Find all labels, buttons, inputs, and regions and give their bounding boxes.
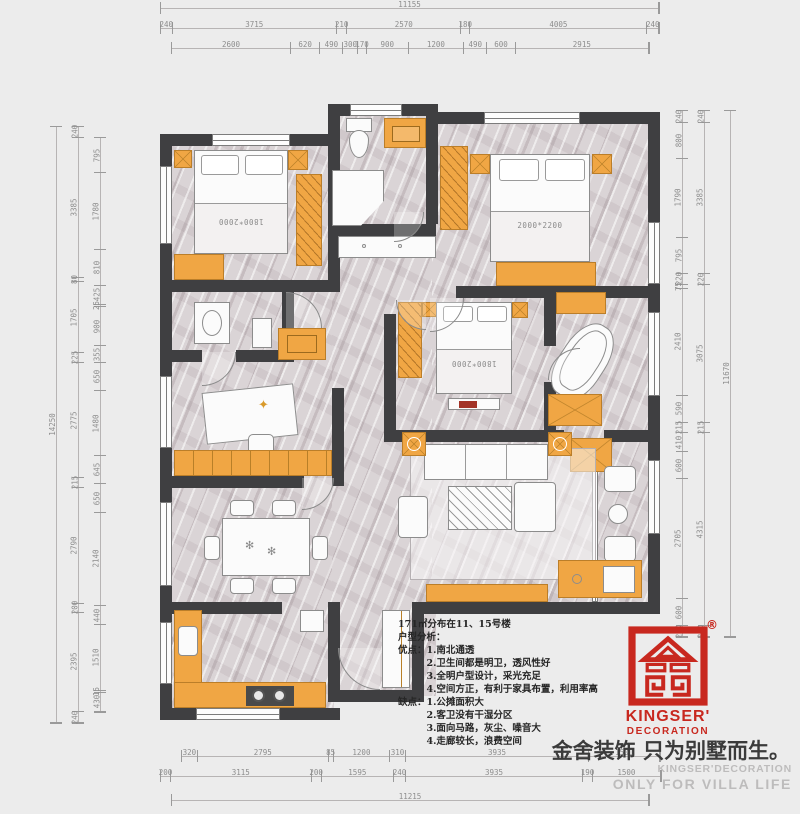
- dimension-segment: 220: [698, 274, 710, 285]
- dimension-value: 620: [298, 40, 312, 49]
- dining-chair: [272, 500, 296, 516]
- dimension-segment: 3715: [173, 22, 337, 34]
- dimension-segment: 240: [72, 127, 84, 138]
- dimension-segment: 240: [394, 770, 406, 782]
- dimension-value: 200: [159, 768, 173, 777]
- dimension-value: 650: [92, 491, 101, 505]
- dimension-value: 2795: [254, 748, 272, 757]
- dimension-segment: 1790: [676, 159, 688, 239]
- dimension-value: 440: [92, 608, 101, 622]
- dimension-segment: 200: [161, 770, 171, 782]
- dimension-value: 225: [70, 351, 79, 365]
- pillow: [545, 159, 585, 181]
- dimension-value: 3385: [696, 189, 705, 207]
- dimension-value: 355: [92, 347, 101, 361]
- list-item: 3.全明户型设计，采光充足: [427, 670, 598, 683]
- laundry-cabinet: [278, 328, 326, 360]
- dimension-segment: 600: [487, 42, 515, 54]
- dimension-value: 900: [92, 319, 101, 333]
- dimension-segment: 2795: [198, 750, 329, 762]
- dimension-segment: 225: [72, 353, 84, 363]
- dimension-value: 1595: [348, 768, 366, 777]
- pillow: [477, 306, 507, 322]
- bookshelf: [174, 450, 332, 476]
- dim-chain-left-mid: 2403385801705225277521527902002395240: [72, 126, 84, 724]
- dimension-value: 1790: [674, 189, 683, 207]
- bench-cushion: [459, 401, 477, 408]
- pillow: [245, 155, 283, 175]
- dimension-value: 600: [674, 605, 683, 619]
- dimension-value: 430: [92, 695, 101, 709]
- bed-sheet: [437, 349, 511, 393]
- dimension-value: 11155: [398, 0, 421, 9]
- analysis-title: 户型分析：: [398, 631, 638, 644]
- dim-chain-left-inner: 7951780810425259003556501480645650214044…: [94, 137, 106, 713]
- storage-cabinet: [548, 394, 602, 426]
- wall: [160, 350, 202, 362]
- dimension-segment: 3385: [72, 138, 84, 278]
- wall: [384, 314, 396, 432]
- burner: [273, 689, 286, 702]
- dimension-value: 1705: [70, 308, 79, 326]
- sofa: [424, 444, 548, 480]
- dimension-segment: 170: [358, 42, 367, 54]
- dimension-segment: 430: [94, 693, 106, 712]
- logo-word-decoration: DECORATION: [616, 726, 720, 737]
- stove: [246, 686, 294, 706]
- bed-size-label: 1800*2000: [195, 217, 287, 226]
- dimension-segment: 410: [676, 433, 688, 452]
- wall: [412, 602, 660, 614]
- dimension-segment: 4315: [698, 433, 710, 626]
- dimension-segment: 240: [161, 22, 173, 34]
- dimension-value: 650: [92, 370, 101, 384]
- window: [648, 312, 660, 396]
- vanity-sink: [392, 126, 420, 142]
- dimension-segment: 210: [337, 22, 347, 34]
- brand-tagline: 金舍装饰 只为别墅而生。: [430, 738, 790, 764]
- dining-chair: [230, 578, 254, 594]
- window: [160, 166, 172, 244]
- dimension-segment: 2790: [72, 488, 84, 604]
- dimension-segment: 645: [94, 456, 106, 485]
- dimension-segment: 200: [72, 604, 84, 613]
- dim-chain-top-inner: 260062049030017090012004906002915: [171, 42, 650, 54]
- list-item: 2.客卫没有干湿分区: [427, 709, 541, 722]
- dimension-value: 215: [70, 476, 79, 490]
- dimension-value: 795: [674, 249, 683, 263]
- balcony-chair: [604, 466, 636, 492]
- pros-row: 优点： 1.南北通透2.卫生间都是明卫，透风性好3.全明户型设计，采光充足4.空…: [398, 644, 638, 696]
- dimension-value: 590: [674, 402, 683, 416]
- dimension-value: 900: [380, 40, 394, 49]
- bed-size-label: 2000*2200: [491, 221, 589, 230]
- side-table: [402, 432, 426, 456]
- dimension-value: 3385: [70, 198, 79, 216]
- dimension-segment: 215: [72, 478, 84, 488]
- dimension-value: 240: [70, 710, 79, 724]
- dimension-value: 240: [696, 110, 705, 124]
- burner: [252, 689, 265, 702]
- watermark-line1: KINGSER'DECORATION: [530, 763, 792, 775]
- dimension-segment: 650: [94, 363, 106, 392]
- dimension-value: 600: [674, 458, 683, 472]
- dimension-value: 210: [335, 20, 349, 29]
- dimension-value: 85: [326, 748, 335, 757]
- dim-chain-right-overall: 11670: [724, 110, 736, 638]
- desk: [496, 262, 596, 286]
- dimension-segment: 900: [94, 307, 106, 346]
- dimension-segment: 215: [676, 423, 688, 433]
- nightstand: [512, 302, 528, 318]
- wall: [544, 286, 556, 346]
- dimension-segment: 3115: [171, 770, 312, 782]
- dimension-segment: 2410: [676, 289, 688, 396]
- dimension-segment: 2140: [94, 513, 106, 606]
- compass-decor-icon: ✦: [258, 398, 269, 413]
- bed-top-left: 1800*2000: [194, 150, 288, 254]
- coffee-table: [448, 486, 512, 530]
- list-item: 1.南北通透: [427, 644, 598, 657]
- window: [160, 622, 172, 684]
- kingser-logo-icon: [628, 626, 708, 706]
- dimension-value: 2915: [573, 40, 591, 49]
- nightstand: [174, 150, 192, 168]
- dimension-segment: 310: [390, 750, 405, 762]
- dimension-value: 180: [459, 20, 473, 29]
- dimension-segment: 2705: [676, 479, 688, 599]
- dimension-segment: 1780: [94, 173, 106, 250]
- analysis-text-block: 171㎡分布在11、15号楼 户型分析： 优点： 1.南北通透2.卫生间都是明卫…: [398, 618, 638, 748]
- laundry-sink: [252, 318, 272, 348]
- dimension-segment: 11155: [161, 2, 659, 14]
- logo-word-kingser: KINGSER': [616, 708, 720, 726]
- dimension-value: 3935: [485, 768, 503, 777]
- kingser-logo: ® KINGSER' DECORATION: [616, 620, 720, 737]
- dimension-value: 220: [696, 272, 705, 286]
- bed-bench: [448, 398, 500, 410]
- dimension-value: 2395: [70, 653, 79, 671]
- dimension-segment: 240: [698, 111, 710, 123]
- dim-chain-bottom-overall: 11215: [171, 794, 650, 806]
- nightstand: [592, 154, 612, 174]
- armchair: [398, 496, 428, 538]
- dimension-segment: 14250: [50, 127, 62, 723]
- dimension-value: 215: [696, 421, 705, 435]
- dimension-segment: 2570: [347, 22, 461, 34]
- nightstand: [288, 150, 308, 170]
- dimension-segment: 2395: [72, 613, 84, 712]
- dimension-value: 200: [309, 768, 323, 777]
- dimension-segment: 1510: [94, 625, 106, 691]
- dimension-segment: 355: [94, 346, 106, 362]
- dimension-segment: 2915: [516, 42, 649, 54]
- dimension-value: 4005: [549, 20, 567, 29]
- area-line: 171㎡分布在11、15号楼: [398, 618, 638, 631]
- dimension-segment: 1480: [94, 391, 106, 455]
- dining-table: ✻ ✻: [222, 518, 310, 576]
- dimension-value: 240: [70, 125, 79, 139]
- dimension-segment: 1595: [322, 770, 395, 782]
- dimension-value: 320: [183, 748, 197, 757]
- dimension-value: 3075: [696, 344, 705, 362]
- dimension-value: 3115: [232, 768, 250, 777]
- window: [212, 134, 290, 146]
- dimension-value: 2790: [70, 536, 79, 554]
- dim-chain-left-overall: 14250: [50, 126, 62, 724]
- list-item: 3.面向马路，灰尘、噪音大: [427, 722, 541, 735]
- dimension-value: 240: [674, 109, 683, 123]
- dimension-segment: 490: [464, 42, 487, 54]
- dimension-value: 800: [674, 133, 683, 147]
- wall: [160, 476, 304, 488]
- dim-chain-top-overall: 11155: [160, 2, 660, 14]
- dimension-value: 1780: [92, 202, 101, 220]
- dimension-value: 1480: [92, 414, 101, 432]
- watermark-line2: ONLY FOR VILLA LIFE: [530, 776, 792, 792]
- dimension-value: 310: [391, 748, 405, 757]
- pillow: [499, 159, 539, 181]
- dimension-value: 1200: [427, 40, 445, 49]
- window: [196, 708, 280, 720]
- dining-chair: [312, 536, 328, 560]
- dimension-segment: 2775: [72, 363, 84, 478]
- dimension-value: 240: [393, 768, 407, 777]
- side-table: [548, 432, 572, 456]
- dimension-value: 11670: [722, 362, 731, 385]
- dimension-value: 4315: [696, 520, 705, 538]
- pros-label: 优点：: [398, 644, 427, 696]
- dimension-value: 1510: [92, 649, 101, 667]
- dimension-segment: 440: [94, 606, 106, 626]
- dimension-value: 75: [674, 282, 683, 291]
- wardrobe: [440, 146, 468, 230]
- wall: [426, 116, 438, 224]
- dimension-value: 25: [92, 301, 101, 310]
- window: [484, 112, 580, 124]
- dimension-segment: 320: [182, 750, 198, 762]
- nightstand: [470, 154, 490, 174]
- bath-vanity: [556, 292, 606, 314]
- dimension-segment: 800: [676, 123, 688, 159]
- balcony-table: [608, 504, 628, 524]
- dim-chain-right-inner: 2408001790795220752410590215410600270560…: [676, 110, 688, 638]
- dimension-value: 2570: [395, 20, 413, 29]
- dimension-value: 2705: [674, 530, 683, 548]
- dimension-value: 1200: [352, 748, 370, 757]
- dimension-value: 810: [92, 261, 101, 275]
- dimension-segment: 11215: [172, 794, 649, 806]
- dimension-value: 795: [92, 148, 101, 162]
- list-item: 4.空间方正，有利于家具布置，利用率高: [427, 683, 598, 696]
- dimension-segment: 240: [647, 22, 659, 34]
- registered-mark: ®: [706, 618, 718, 632]
- dimension-segment: 4005: [470, 22, 647, 34]
- dimension-value: 2410: [674, 333, 683, 351]
- washing-machine: [194, 302, 230, 344]
- dimension-value: 240: [646, 20, 660, 29]
- fridge: [300, 610, 324, 632]
- kitchen-sink: [178, 626, 198, 656]
- dimension-value: 200: [70, 601, 79, 615]
- dimension-segment: 215: [698, 423, 710, 434]
- dimension-value: 215: [674, 421, 683, 435]
- dimension-segment: 240: [676, 111, 688, 123]
- cons-label: 缺点：: [398, 696, 427, 748]
- dining-chair: [230, 500, 254, 516]
- dimension-segment: 620: [291, 42, 320, 54]
- dimension-segment: 200: [312, 770, 322, 782]
- brand-watermark: KINGSER'DECORATION ONLY FOR VILLA LIFE: [530, 763, 792, 792]
- dim-chain-top-mid: 240371521025701804005240: [160, 22, 660, 34]
- dimension-value: 14250: [48, 413, 57, 436]
- dimension-value: 600: [494, 40, 508, 49]
- dimension-segment: 240: [72, 712, 84, 723]
- wall: [160, 280, 340, 292]
- dimension-segment: 2600: [172, 42, 291, 54]
- dimension-value: 490: [325, 40, 339, 49]
- wall: [604, 430, 660, 442]
- dimension-value: 80: [70, 275, 79, 284]
- dimension-value: 425: [92, 288, 101, 302]
- dimension-segment: 1200: [334, 750, 391, 762]
- dimension-segment: 600: [676, 452, 688, 479]
- dimension-segment: 180: [461, 22, 470, 34]
- dimension-segment: 3075: [698, 285, 710, 423]
- dimension-segment: 490: [320, 42, 343, 54]
- wardrobe: [296, 174, 322, 266]
- balcony-counter: [558, 560, 642, 598]
- window: [648, 222, 660, 284]
- dimension-segment: 795: [94, 138, 106, 173]
- round-sink: [565, 567, 589, 591]
- dimension-segment: 1200: [409, 42, 464, 54]
- dimension-segment: 900: [367, 42, 409, 54]
- tv-cabinet: [426, 584, 548, 602]
- dimension-value: 11215: [399, 792, 422, 801]
- window: [160, 376, 172, 448]
- chaise-chair: [514, 482, 556, 532]
- dimension-value: 3715: [245, 20, 263, 29]
- window: [350, 104, 402, 116]
- bed-top-right: 2000*2200: [490, 154, 590, 262]
- dining-chair: [204, 536, 220, 560]
- dimension-value: 2140: [92, 550, 101, 568]
- bath-vanity: [384, 118, 426, 148]
- dimension-segment: 11670: [724, 111, 736, 637]
- dim-chain-right-mid: 240338522030752154315220: [698, 110, 710, 638]
- dimension-value: 645: [92, 463, 101, 477]
- dimension-value: 410: [674, 435, 683, 449]
- sink-basin: [355, 237, 373, 255]
- dimension-segment: 1705: [72, 282, 84, 353]
- dimension-value: 2775: [70, 411, 79, 429]
- utility-sink: [603, 566, 635, 593]
- window: [160, 502, 172, 586]
- wall: [332, 388, 344, 486]
- window: [648, 460, 660, 534]
- dimension-segment: 795: [676, 238, 688, 274]
- fan-decor-icon: ✻: [267, 545, 276, 558]
- dimension-segment: 810: [94, 250, 106, 286]
- dining-chair: [272, 578, 296, 594]
- cabinet-basin: [287, 335, 317, 353]
- list-item: 1.公摊面积大: [427, 696, 541, 709]
- dimension-segment: 650: [94, 484, 106, 513]
- bed-sheet: [491, 211, 589, 261]
- balcony-chair: [604, 536, 636, 562]
- fan-decor-icon: ✻: [245, 539, 254, 552]
- dimension-value: 240: [160, 20, 174, 29]
- dresser: [174, 254, 224, 280]
- dimension-value: 2600: [222, 40, 240, 49]
- list-item: 2.卫生间都是明卫，透风性好: [427, 657, 598, 670]
- dimension-segment: 3385: [698, 123, 710, 275]
- double-sink-vanity: [338, 236, 436, 258]
- dimension-segment: 590: [676, 396, 688, 423]
- bed-size-label: 1800*2000: [437, 359, 511, 368]
- dimension-value: 490: [469, 40, 483, 49]
- dimension-value: 170: [355, 40, 369, 49]
- pillow: [201, 155, 239, 175]
- pros-list: 1.南北通透2.卫生间都是明卫，透风性好3.全明户型设计，采光充足4.空间方正，…: [427, 644, 598, 696]
- bed-sheet: [195, 203, 287, 253]
